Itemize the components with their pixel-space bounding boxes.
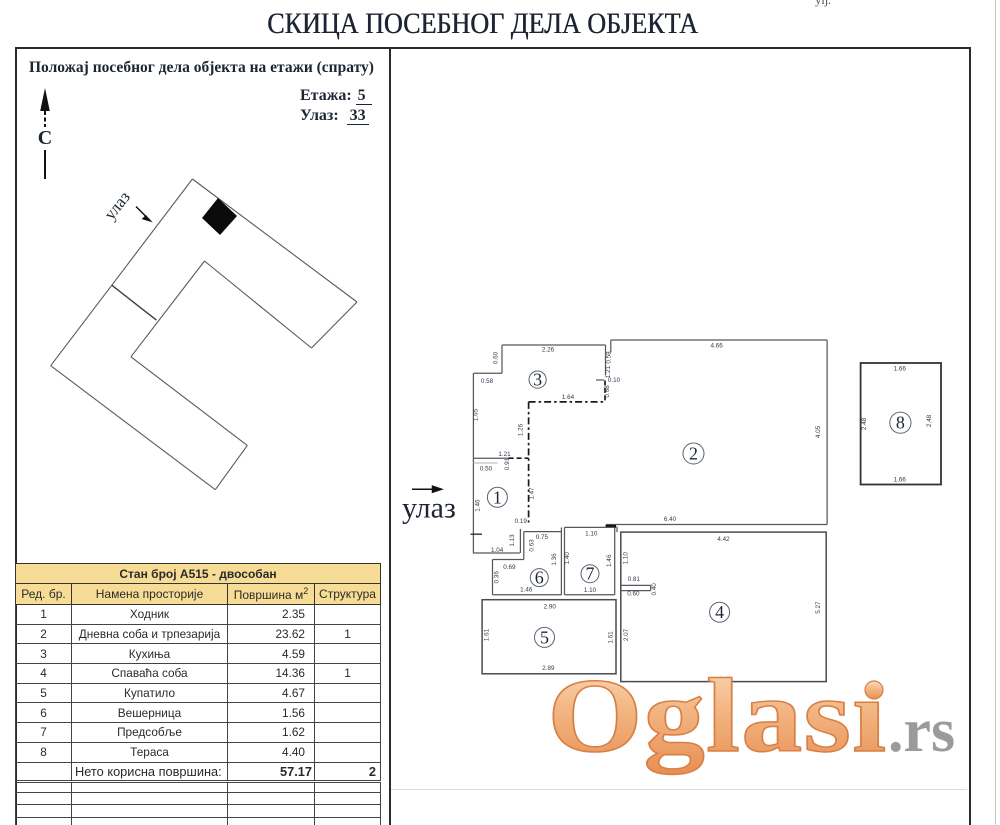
- svg-text:0.58: 0.58: [481, 378, 494, 385]
- svg-text:1.21: 1.21: [498, 451, 511, 458]
- svg-text:0.60: 0.60: [493, 351, 500, 364]
- svg-text:1.10: 1.10: [585, 531, 598, 538]
- svg-text:2.07: 2.07: [623, 628, 630, 641]
- svg-text:6.40: 6.40: [664, 516, 677, 523]
- svg-text:0.58: 0.58: [606, 351, 613, 364]
- svg-text:0.40: 0.40: [651, 583, 658, 596]
- svg-text:1.13: 1.13: [509, 534, 516, 547]
- svg-text:1.61: 1.61: [483, 628, 490, 641]
- svg-text:0.75: 0.75: [536, 534, 549, 541]
- svg-text:2: 2: [689, 444, 698, 464]
- svg-text:2.26: 2.26: [542, 347, 555, 354]
- svg-text:.rs: .rs: [888, 697, 955, 765]
- svg-text:1.65: 1.65: [473, 408, 480, 421]
- svg-text:1.10: 1.10: [584, 587, 597, 594]
- svg-text:2.90: 2.90: [544, 603, 557, 610]
- svg-text:2.48: 2.48: [926, 414, 933, 427]
- svg-text:1.46: 1.46: [520, 587, 533, 594]
- svg-text:0.19: 0.19: [515, 518, 528, 525]
- svg-text:0.60: 0.60: [627, 590, 640, 597]
- svg-text:8: 8: [896, 413, 905, 433]
- svg-text:0.10: 0.10: [608, 377, 621, 384]
- svg-text:4.05: 4.05: [815, 425, 822, 438]
- svg-text:0.69: 0.69: [503, 564, 516, 571]
- svg-text:0.81: 0.81: [628, 576, 641, 583]
- svg-text:0.36: 0.36: [494, 571, 501, 584]
- svg-text:1.66: 1.66: [894, 366, 907, 373]
- svg-text:улаз: улаз: [100, 188, 134, 224]
- svg-text:4.42: 4.42: [717, 536, 730, 543]
- svg-text:1.46: 1.46: [606, 554, 613, 567]
- svg-text:2.48: 2.48: [861, 417, 868, 430]
- svg-text:0.68: 0.68: [604, 385, 611, 398]
- svg-text:4: 4: [715, 602, 724, 622]
- svg-text:1: 1: [493, 487, 502, 507]
- svg-text:1.64: 1.64: [562, 394, 575, 401]
- svg-text:0.50: 0.50: [480, 465, 493, 472]
- svg-text:1.66: 1.66: [894, 477, 907, 484]
- svg-text:3: 3: [533, 370, 542, 390]
- svg-text:7: 7: [586, 564, 595, 584]
- svg-text:1.36: 1.36: [551, 553, 558, 566]
- svg-text:1.10: 1.10: [622, 552, 629, 565]
- svg-text:1.46: 1.46: [474, 499, 481, 512]
- svg-text:1.47: 1.47: [529, 487, 536, 500]
- svg-text:1.26: 1.26: [518, 423, 525, 436]
- svg-text:6: 6: [535, 568, 544, 588]
- svg-text:С: С: [38, 127, 52, 149]
- svg-text:0.91: 0.91: [504, 457, 511, 470]
- svg-text:5.27: 5.27: [815, 601, 822, 614]
- svg-text:Oglası: Oglası: [547, 657, 887, 775]
- svg-text:0.63: 0.63: [528, 539, 535, 552]
- svg-text:1.04: 1.04: [491, 547, 504, 554]
- svg-text:4.66: 4.66: [710, 343, 723, 350]
- svg-text:улаз: улаз: [402, 492, 456, 525]
- svg-text:1.40: 1.40: [564, 552, 571, 565]
- svg-text:1.61: 1.61: [607, 631, 614, 644]
